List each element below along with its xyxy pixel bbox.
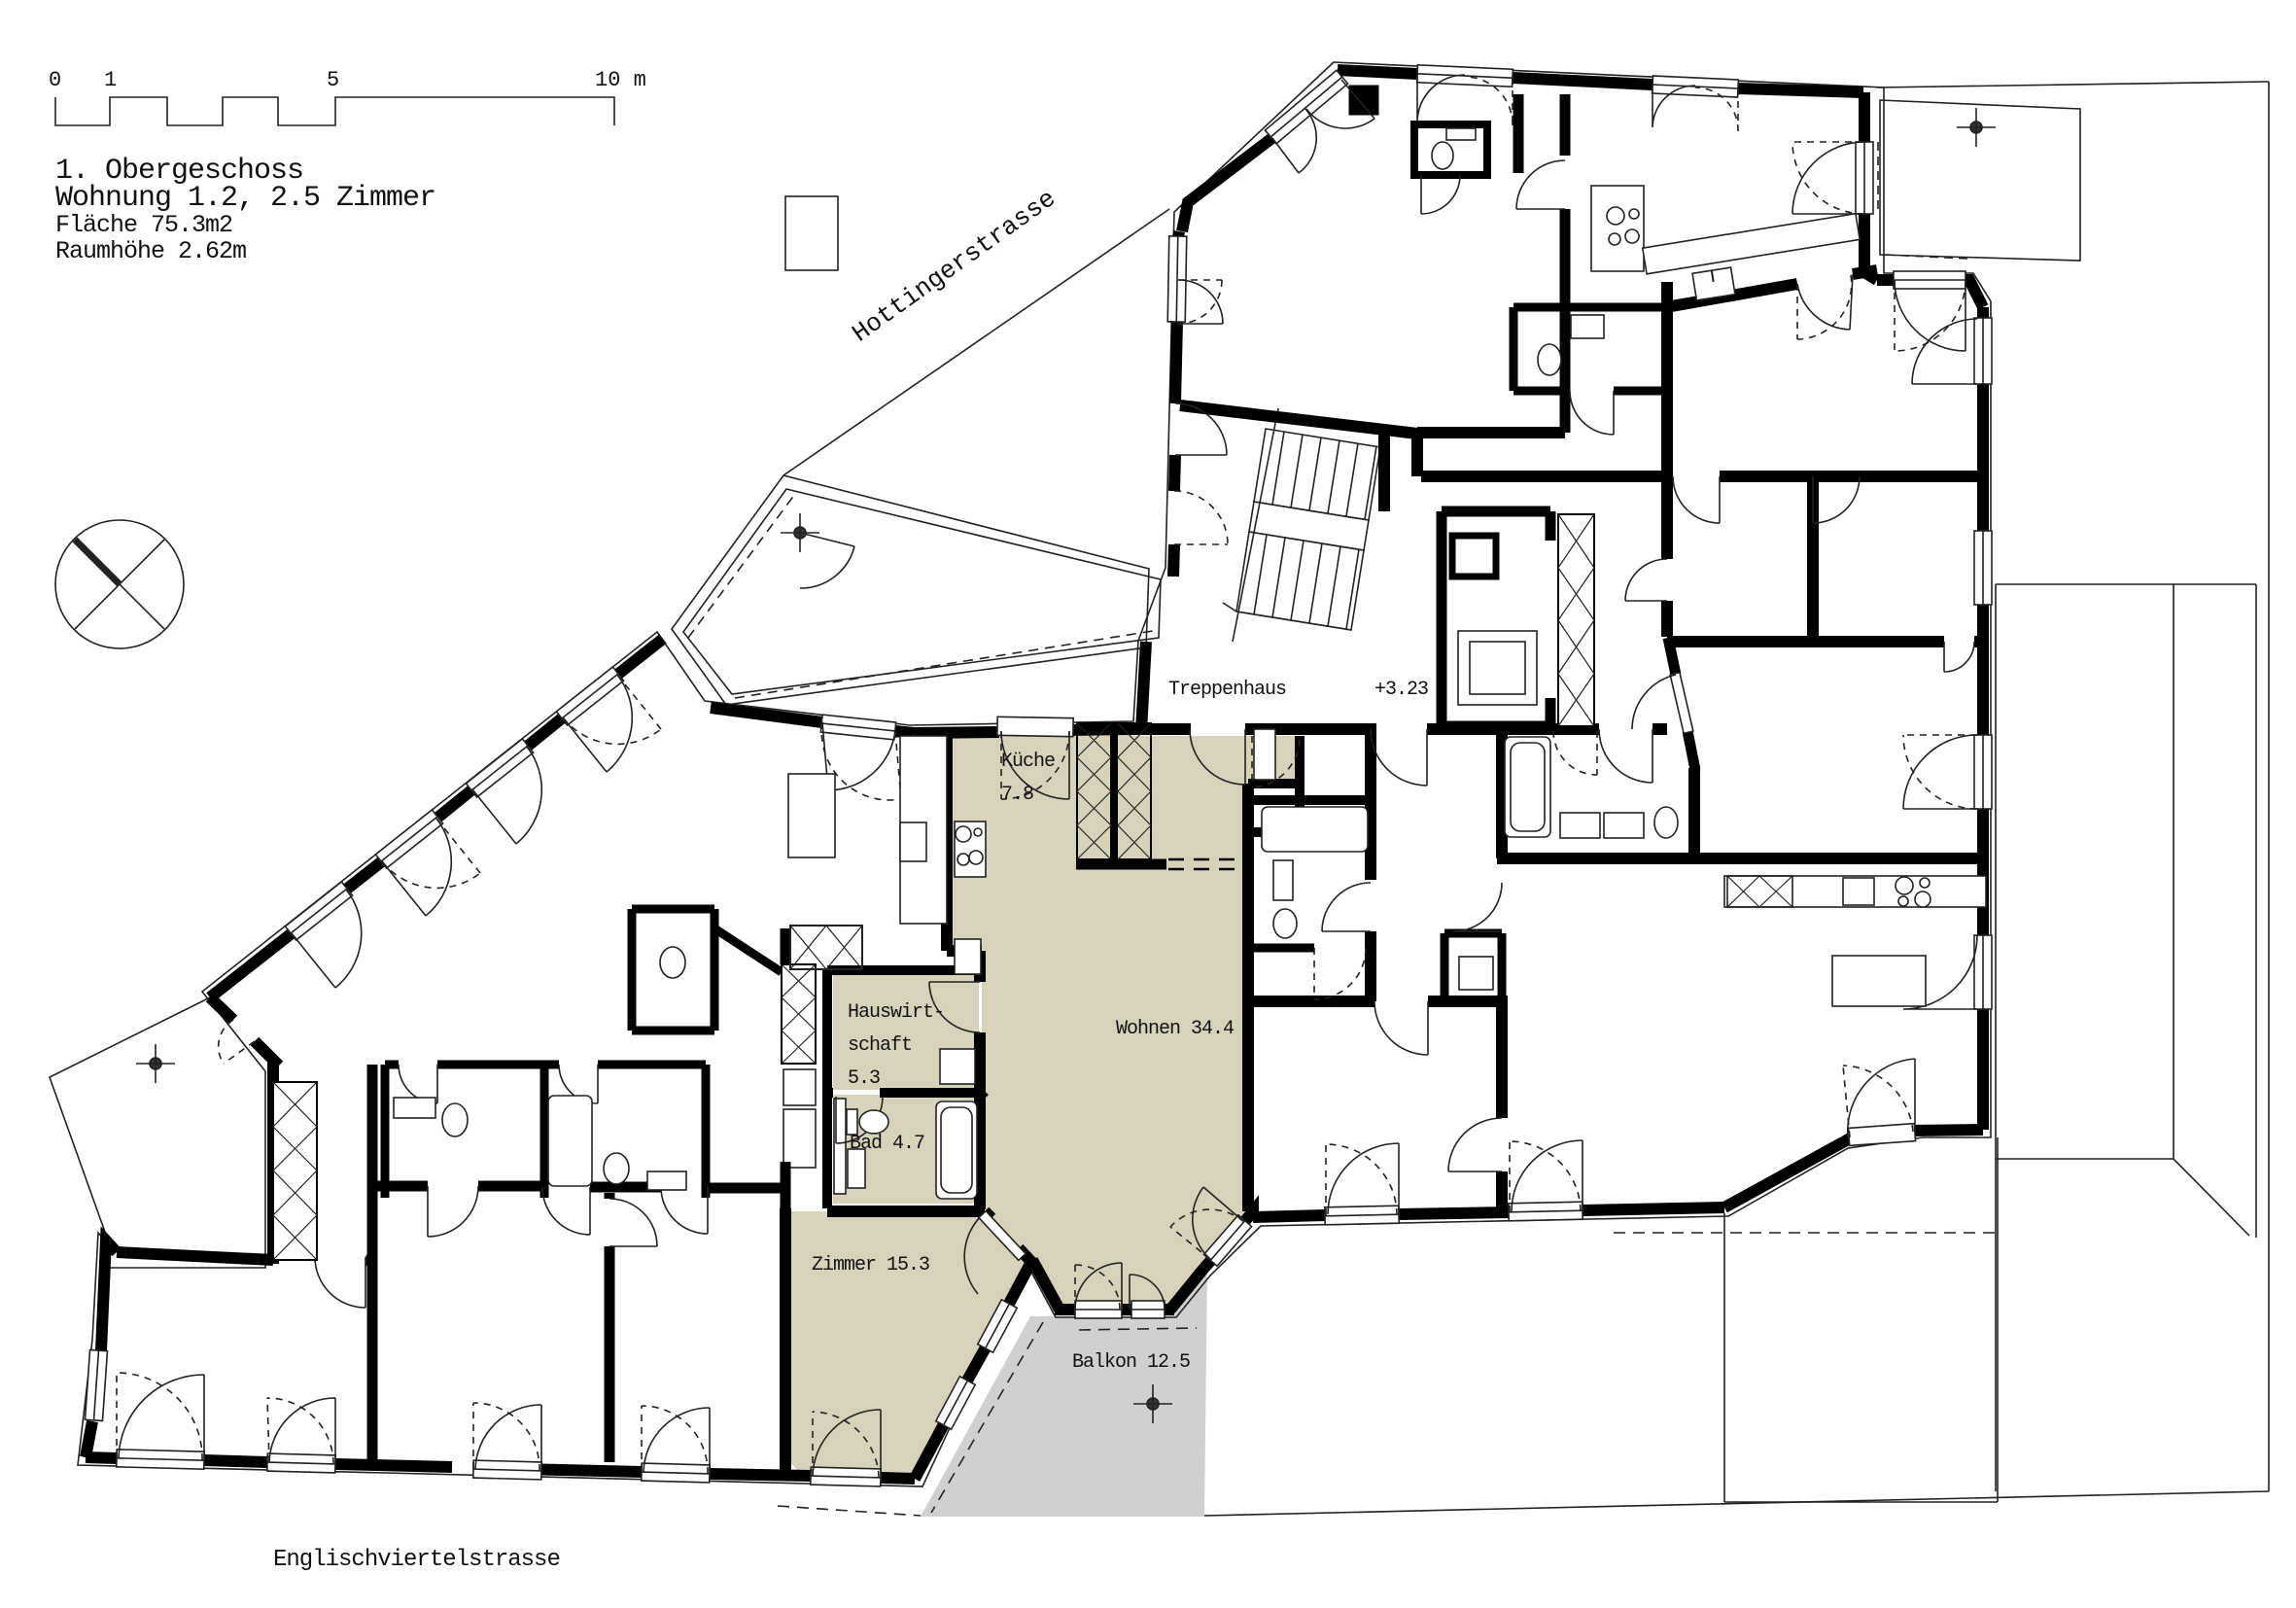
svg-text:0: 0 [49,68,61,92]
svg-text:+3.23: +3.23 [1374,679,1428,701]
svg-text:Wohnen 34.4: Wohnen 34.4 [1116,1018,1234,1040]
svg-text:Bad 4.7: Bad 4.7 [850,1133,924,1155]
svg-text:5.3: 5.3 [848,1067,880,1090]
svg-text:Englischviertelstrasse: Englischviertelstrasse [273,1547,560,1573]
svg-text:Raumhöhe 2.62m: Raumhöhe 2.62m [55,237,246,265]
svg-text:Treppenhaus: Treppenhaus [1168,679,1286,701]
svg-text:7.8: 7.8 [1001,784,1033,806]
svg-text:Fläche 75.3m2: Fläche 75.3m2 [55,211,232,239]
svg-text:10 m: 10 m [595,68,646,92]
svg-text:Zimmer 15.3: Zimmer 15.3 [812,1254,929,1276]
svg-text:Hauswirt-: Hauswirt- [848,1001,944,1024]
svg-text:Balkon 12.5: Balkon 12.5 [1072,1351,1190,1374]
svg-text:Wohnung 1.2, 2.5 Zimmer: Wohnung 1.2, 2.5 Zimmer [55,182,435,215]
svg-text:1: 1 [104,68,117,92]
svg-text:5: 5 [327,68,339,92]
svg-text:schaft: schaft [848,1034,912,1057]
svg-text:Küche: Küche [1001,751,1055,773]
